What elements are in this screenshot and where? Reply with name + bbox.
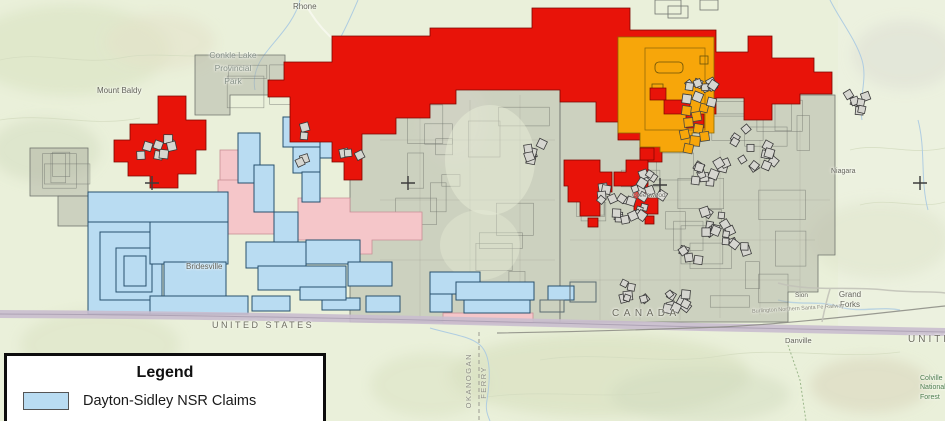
legend-title: Legend: [7, 364, 323, 382]
legend-item: Dayton-Sidley NSR Claims: [23, 392, 323, 410]
map-viewport[interactable]: Rhone Conkle Lake Provincial Park Mount …: [0, 0, 945, 421]
legend-swatch-dayton-sidley: [23, 392, 69, 410]
legend-panel: Legend Dayton-Sidley NSR Claims: [4, 353, 326, 421]
legend-item-label: Dayton-Sidley NSR Claims: [83, 393, 256, 409]
